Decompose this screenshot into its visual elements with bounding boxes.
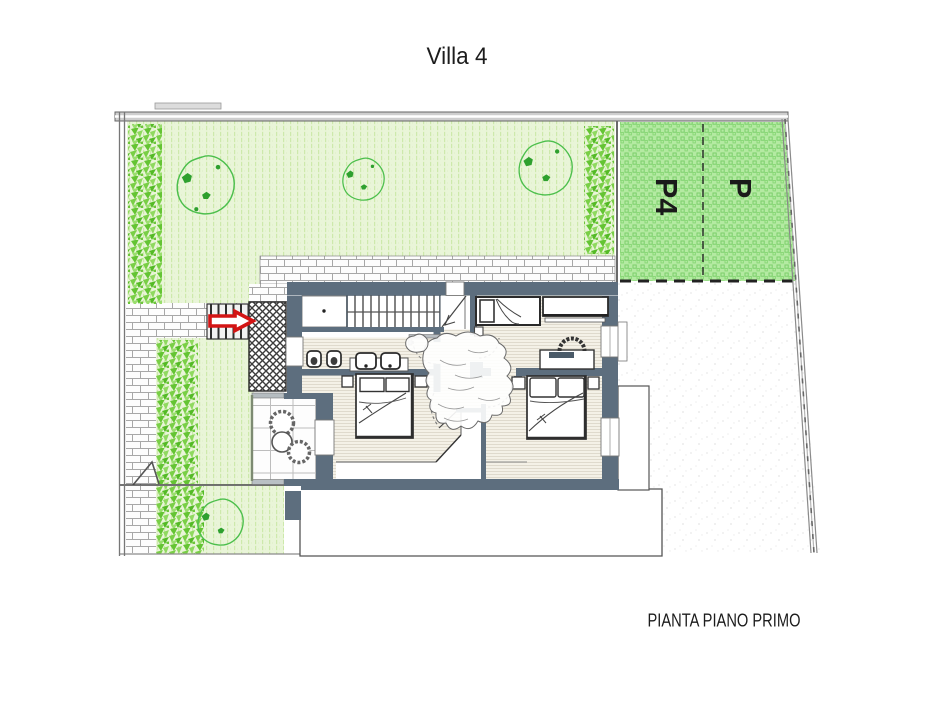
svg-text:PIANTA PIANO PRIMO: PIANTA PIANO PRIMO xyxy=(648,610,801,631)
svg-text:P4: P4 xyxy=(649,178,683,215)
svg-text:Villa 4: Villa 4 xyxy=(427,43,488,70)
svg-text:P: P xyxy=(723,178,757,198)
